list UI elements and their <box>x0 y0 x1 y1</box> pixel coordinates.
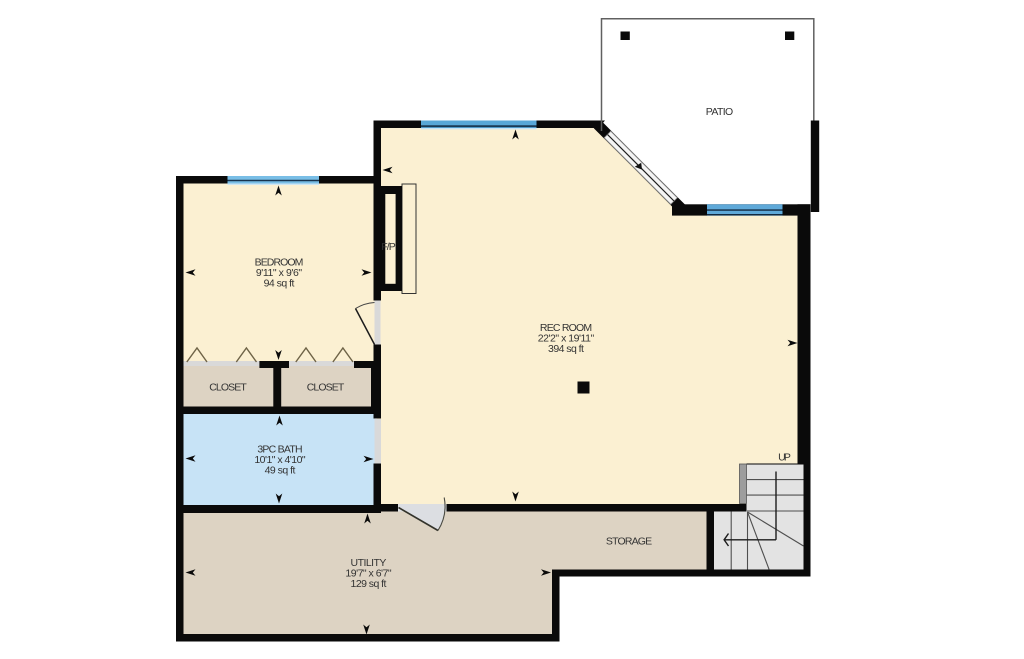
svg-text:F/P: F/P <box>381 241 396 253</box>
svg-text:49 sq ft: 49 sq ft <box>265 464 296 476</box>
svg-text:UP: UP <box>778 452 791 464</box>
svg-text:394 sq ft: 394 sq ft <box>548 343 584 355</box>
svg-text:CLOSET: CLOSET <box>209 382 247 394</box>
svg-text:STORAGE: STORAGE <box>606 535 652 547</box>
svg-text:129 sq ft: 129 sq ft <box>351 578 387 590</box>
svg-text:94 sq ft: 94 sq ft <box>264 278 295 290</box>
svg-text:CLOSET: CLOSET <box>307 382 345 394</box>
svg-text:PATIO: PATIO <box>706 106 733 118</box>
